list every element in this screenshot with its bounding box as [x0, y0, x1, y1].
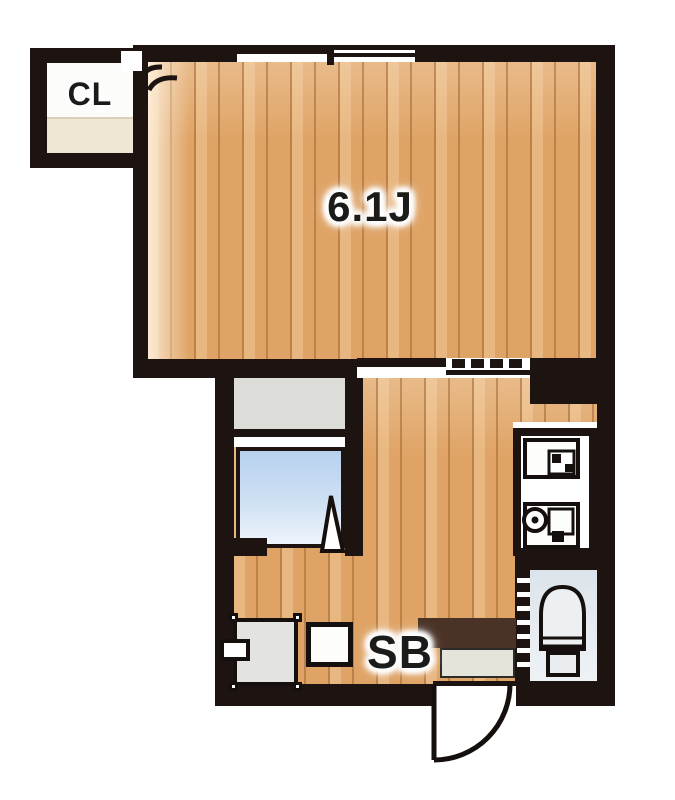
wall-pillar	[530, 358, 615, 404]
sliding-door-dash	[471, 359, 484, 368]
closet-label: CL	[46, 72, 134, 116]
sliding-door-track	[446, 370, 530, 375]
shoe-cabinet	[306, 622, 353, 667]
sink-icon	[523, 502, 580, 549]
toilet-folding-door-tick	[517, 662, 530, 667]
toilet-room	[530, 570, 597, 681]
wall-bathroom-right	[345, 378, 363, 556]
wall-bathroom-bottom	[215, 538, 267, 556]
bathroom-gap	[234, 437, 345, 447]
main-room-label: 6.1J	[280, 184, 460, 230]
corner-grip	[229, 682, 238, 691]
corner-grip	[293, 613, 302, 622]
washing-machine-tap-box	[220, 639, 250, 661]
toilet-folding-door-tick	[517, 578, 530, 583]
sliding-door-dash	[509, 359, 522, 368]
bathtub	[236, 447, 345, 548]
entrance-floor	[440, 648, 515, 678]
corner-grip	[293, 682, 302, 691]
toilet-folding-door-tick	[517, 648, 530, 653]
main-room-floor-highlight	[148, 62, 190, 359]
floor-plan: CL 6.1J SB	[0, 0, 675, 800]
sliding-door-dash	[452, 359, 465, 368]
sliding-door-dash	[490, 359, 503, 368]
toilet-folding-door-tick	[517, 620, 530, 625]
window-left-sash-icon	[237, 45, 329, 54]
bathroom-vanity	[234, 378, 347, 430]
toilet-folding-door-tick	[517, 606, 530, 611]
window-right-inner-sash-icon	[334, 53, 415, 57]
window-mullion	[327, 52, 334, 65]
entrance-opening	[433, 686, 516, 706]
stove-icon	[523, 438, 580, 479]
shoe-box-label: SB	[350, 626, 450, 678]
closet-door-opening	[121, 51, 142, 71]
closet-shelf	[47, 117, 133, 153]
window-right-outer-sash-icon	[334, 45, 415, 50]
vanity-edge	[234, 429, 352, 437]
corner-grip	[229, 613, 238, 622]
toilet-folding-door-tick	[517, 634, 530, 639]
sliding-door-panel-icon	[357, 358, 446, 367]
toilet-folding-door-tick	[517, 592, 530, 597]
